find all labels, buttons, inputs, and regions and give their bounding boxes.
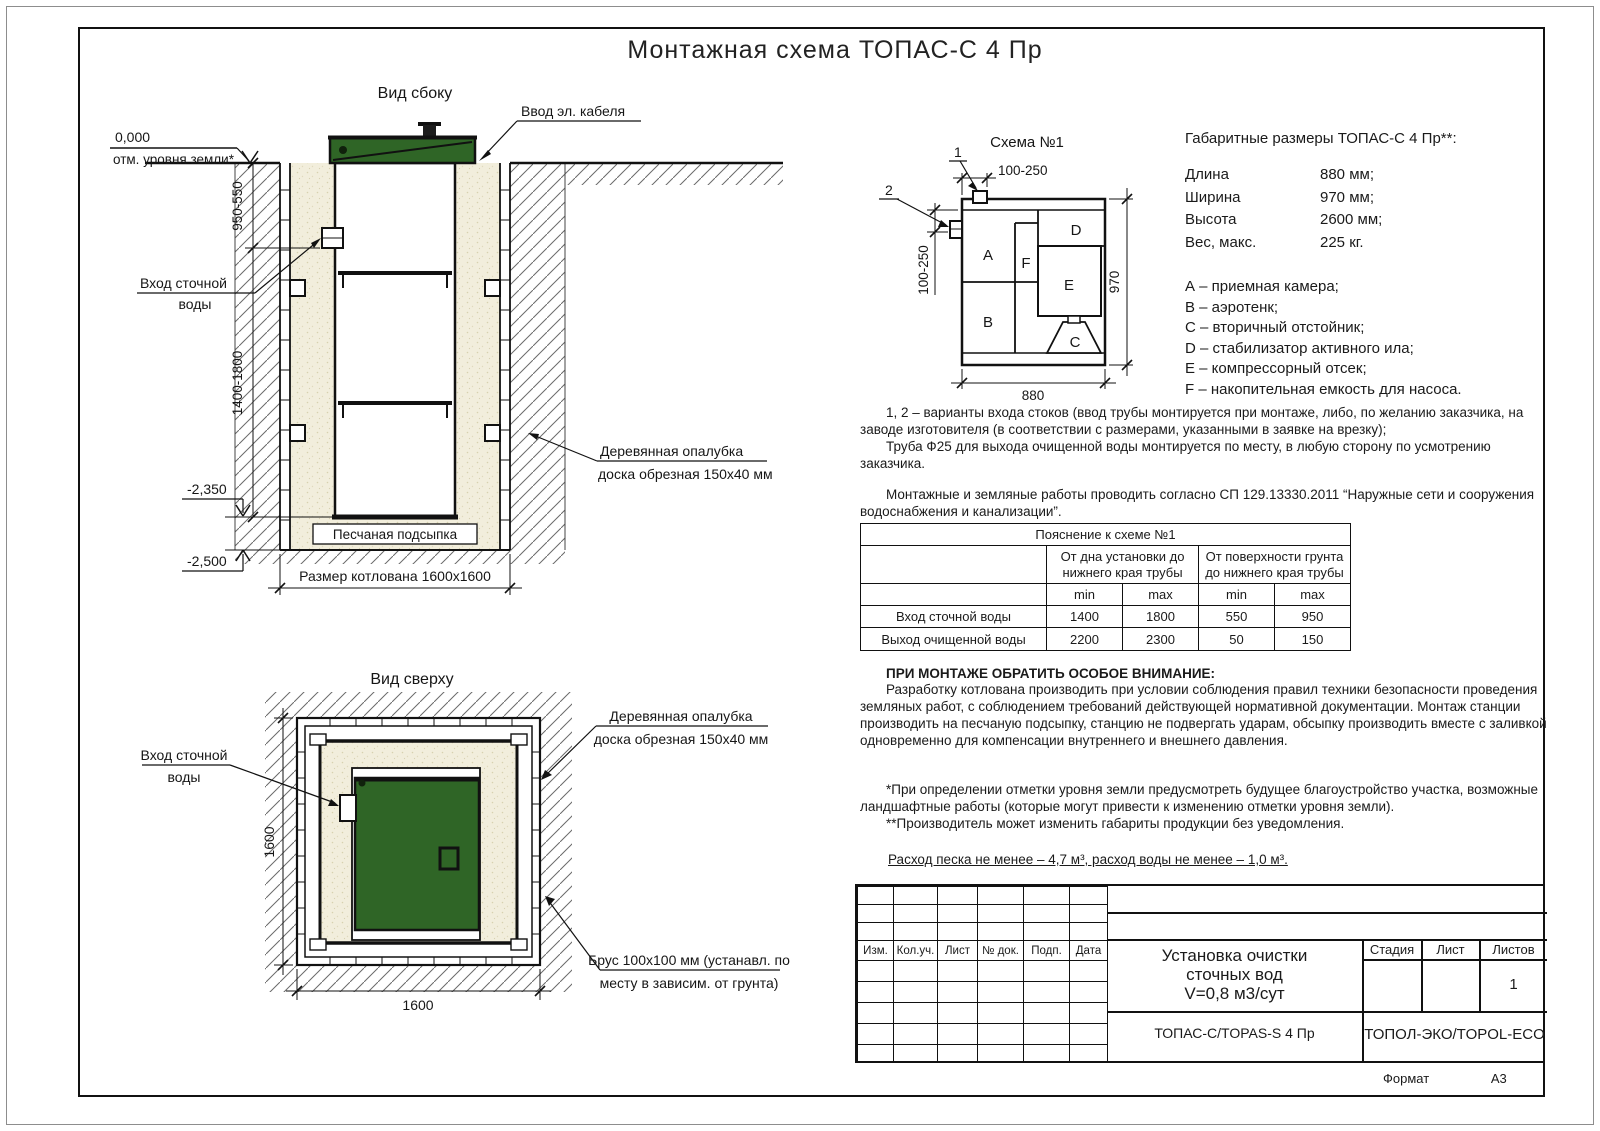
- svg-text:Вход сточной: Вход сточной: [140, 275, 227, 291]
- formwork-label: Деревянная опалубка доска обрезная 150х4…: [541, 708, 768, 780]
- legend-item: В – аэротенк;: [1185, 298, 1545, 319]
- svg-text:Песчаная подсыпка: Песчаная подсыпка: [333, 527, 458, 542]
- svg-text:доска обрезная 150х40 мм: доска обрезная 150х40 мм: [594, 731, 769, 747]
- zero-level-mark: 0,000 отм. уровня земли*: [110, 129, 258, 167]
- rev-col-list: Лист: [938, 941, 978, 961]
- inlet-variant-1-stub: [973, 191, 987, 203]
- svg-text:доска обрезная 150х40 мм: доска обрезная 150х40 мм: [598, 466, 773, 482]
- vent-square: [440, 848, 458, 869]
- tank-body: [322, 163, 458, 517]
- table-min-header: min: [1047, 584, 1123, 606]
- table-row: Вход сточной воды 1400 1800 550 950: [861, 606, 1351, 628]
- attention-title: ПРИ МОНТАЖЕ ОБРАТИТЬ ОСОБОЕ ВНИМАНИЕ:: [860, 666, 1550, 681]
- svg-text:Деревянная опалубка: Деревянная опалубка: [600, 443, 743, 459]
- svg-text:Брус 100х100 мм (устанавл. по: Брус 100х100 мм (устанавл. по: [588, 952, 790, 968]
- legend-item: Е – компрессорный отсек;: [1185, 359, 1545, 380]
- model-name: ТОПАС-С/TOPAS-S 4 Пр: [1107, 1025, 1362, 1041]
- row-label: Выход очищенной воды: [861, 628, 1047, 651]
- scheme-title: Схема №1: [990, 134, 1064, 151]
- legend-item: А – приемная камера;: [1185, 277, 1545, 298]
- side-view-drawing: Вид сбоку: [85, 80, 785, 610]
- chamber-f: F: [1021, 255, 1030, 272]
- chamber-c: C: [1070, 334, 1081, 351]
- dim-left-1600: 1600: [261, 826, 277, 857]
- dim-bottom-1600: 1600: [402, 997, 433, 1013]
- svg-text:Вход сточной: Вход сточной: [141, 747, 228, 763]
- table-max-header: max: [1275, 584, 1351, 606]
- rev-col-podp: Подп.: [1024, 941, 1070, 961]
- svg-text:-2,350: -2,350: [187, 481, 227, 497]
- attention-body: Разработку котлована производить при усл…: [860, 681, 1550, 749]
- dim-label: Высота: [1185, 209, 1320, 232]
- company-name: ТОПОЛ-ЭКО/TOPOL-ECO: [1362, 1026, 1547, 1043]
- dim-right-970: 970: [1107, 271, 1122, 294]
- side-view-title: Вид сбоку: [378, 85, 453, 102]
- table-group1: От дна установки до нижнего края трубы: [1047, 546, 1199, 584]
- format-line: Формат А3: [1383, 1071, 1507, 1086]
- overall-dimensions-block: Габаритные размеры ТОПАС-С 4 Пр**: Длина…: [1185, 130, 1545, 400]
- rev-col-ndok: № док.: [978, 941, 1024, 961]
- svg-text:отм. уровня земли*: отм. уровня земли*: [113, 152, 235, 167]
- table-group2: От поверхности грунта до нижнего края тр…: [1199, 546, 1351, 584]
- rev-col-izm: Изм.: [858, 941, 894, 961]
- dim-1400-1800: 1400-1800: [230, 351, 245, 416]
- stamp-line: [1107, 1011, 1547, 1013]
- top-view-title: Вид сверху: [370, 671, 453, 688]
- dim-value: 970 мм;: [1320, 187, 1374, 210]
- chamber-b: B: [983, 314, 993, 331]
- chamber-e: E: [1064, 277, 1074, 294]
- svg-text:1: 1: [954, 144, 962, 160]
- scheme-outline: [962, 199, 1105, 365]
- table-title: Пояснение к схеме №1: [861, 524, 1351, 546]
- dim-bottom-880: 880: [1022, 388, 1045, 403]
- legend-item: D – стабилизатор активного ила;: [1185, 339, 1545, 360]
- document-title: Установка очистки сточных вод V=0,8 м3/с…: [1107, 946, 1362, 1003]
- stage-header: Стадия: [1362, 942, 1422, 957]
- row-value: 550: [1199, 606, 1275, 628]
- row-label: Вход сточной воды: [861, 606, 1047, 628]
- leader-arrow: [479, 150, 491, 161]
- marker-1: 1: [949, 144, 978, 191]
- format-value: А3: [1491, 1071, 1507, 1086]
- drawing-sheet: Монтажная схема ТОПАС-С 4 Пр Вид сбоку: [0, 0, 1600, 1131]
- svg-text:-2,500: -2,500: [187, 553, 227, 569]
- svg-text:Деревянная опалубка: Деревянная опалубка: [609, 708, 752, 724]
- footnote-ground-level: *При определении отметки уровня земли пр…: [860, 781, 1550, 815]
- legend-item: F – накопительная емкость для насоса.: [1185, 380, 1545, 401]
- rev-col-data: Дата: [1070, 941, 1108, 961]
- dim-label: Ширина: [1185, 187, 1320, 210]
- marker-2: 2: [879, 182, 949, 227]
- scheme-1-drawing: Схема №1 A F D E B C 1: [855, 125, 1195, 405]
- table-min-header: min: [1199, 584, 1275, 606]
- notes-block: 1, 2 – варианты входа стоков (ввод трубы…: [860, 404, 1550, 520]
- table-corner-cell: [861, 546, 1047, 584]
- chamber-legend: А – приемная камера; В – аэротенк; С – в…: [1185, 277, 1545, 400]
- inlet-stub: [340, 795, 356, 821]
- dim-950-550: 950-550: [230, 181, 245, 231]
- dim-label: Длина: [1185, 164, 1320, 187]
- dim-top-100-250: 100-250: [998, 163, 1048, 178]
- svg-text:0,000: 0,000: [115, 129, 150, 145]
- stamp-line: [1107, 912, 1547, 914]
- svg-text:воды: воды: [168, 769, 201, 785]
- row-value: 2300: [1123, 628, 1199, 651]
- legend-item: С – вторичный отстойник;: [1185, 318, 1545, 339]
- dim-value: 2600 мм;: [1320, 209, 1382, 232]
- revision-grid: Изм. Кол.уч. Лист № док. Подп. Дата: [857, 886, 1108, 1062]
- dim-value: 880 мм;: [1320, 164, 1374, 187]
- top-view-drawing: Вид сверху: [140, 660, 820, 1020]
- table-empty-cell: [861, 584, 1047, 606]
- tank-top: [340, 768, 480, 940]
- sheets-header: Листов: [1480, 942, 1547, 957]
- rev-col-koluch: Кол.уч.: [894, 941, 938, 961]
- overall-rows: Длина880 мм; Ширина970 мм; Высота2600 мм…: [1185, 164, 1545, 254]
- dim-value: 225 кг.: [1320, 232, 1364, 255]
- svg-text:воды: воды: [179, 296, 212, 312]
- green-lid: [355, 778, 479, 930]
- overall-title: Габаритные размеры ТОПАС-С 4 Пр**:: [1185, 130, 1545, 147]
- row-value: 150: [1275, 628, 1351, 651]
- row-value: 2200: [1047, 628, 1123, 651]
- row-value: 1400: [1047, 606, 1123, 628]
- page-title: Монтажная схема ТОПАС-С 4 Пр: [590, 36, 1080, 65]
- row-value: 950: [1275, 606, 1351, 628]
- svg-text:Размер котлована 1600х1600: Размер котлована 1600х1600: [299, 568, 491, 584]
- stamp-line: [1362, 959, 1547, 961]
- explanation-table: Пояснение к схеме №1 От дна установки до…: [860, 523, 1351, 651]
- format-label: Формат: [1383, 1071, 1429, 1086]
- sheet-header: Лист: [1422, 942, 1479, 957]
- beam-label: Брус 100х100 мм (устанавл. по месту в за…: [545, 896, 790, 991]
- cable-entry-label: Ввод эл. кабеля: [479, 103, 641, 161]
- sheets-value: 1: [1480, 976, 1547, 993]
- footnotes-block: *При определении отметки уровня земли пр…: [860, 781, 1550, 832]
- dim-label: Вес, макс.: [1185, 232, 1320, 255]
- title-block: Изм. Кол.уч. Лист № док. Подп. Дата Уста…: [855, 884, 1545, 1063]
- row-value: 1800: [1123, 606, 1199, 628]
- row-value: 50: [1199, 628, 1275, 651]
- svg-text:Ввод эл. кабеля: Ввод эл. кабеля: [521, 103, 625, 119]
- chamber-d: D: [1071, 222, 1082, 239]
- dim-left-100-250: 100-250: [916, 245, 931, 295]
- stamp-line: [1107, 939, 1547, 941]
- note-variants: 1, 2 – варианты входа стоков (ввод трубы…: [860, 404, 1550, 438]
- chamber-a: A: [983, 247, 993, 264]
- consumption-line: Расход песка не менее – 4,7 м³, расход в…: [888, 852, 1288, 867]
- tank-lid: [328, 124, 477, 163]
- note-sp: Монтажные и земляные работы проводить со…: [860, 486, 1550, 520]
- note-pipe: Труба Ф25 для выхода очищенной воды монт…: [860, 438, 1550, 472]
- footnote-manufacturer: **Производитель может изменить габариты …: [860, 815, 1550, 832]
- sand-bedding-label: Песчаная подсыпка: [313, 524, 477, 544]
- svg-text:месту в зависим. от грунта): месту в зависим. от грунта): [600, 975, 779, 991]
- svg-text:2: 2: [885, 182, 893, 198]
- attention-block: ПРИ МОНТАЖЕ ОБРАТИТЬ ОСОБОЕ ВНИМАНИЕ: Ра…: [860, 666, 1550, 749]
- table-row: Выход очищенной воды 2200 2300 50 150: [861, 628, 1351, 651]
- table-max-header: max: [1123, 584, 1199, 606]
- stamp-line: [1362, 939, 1364, 1063]
